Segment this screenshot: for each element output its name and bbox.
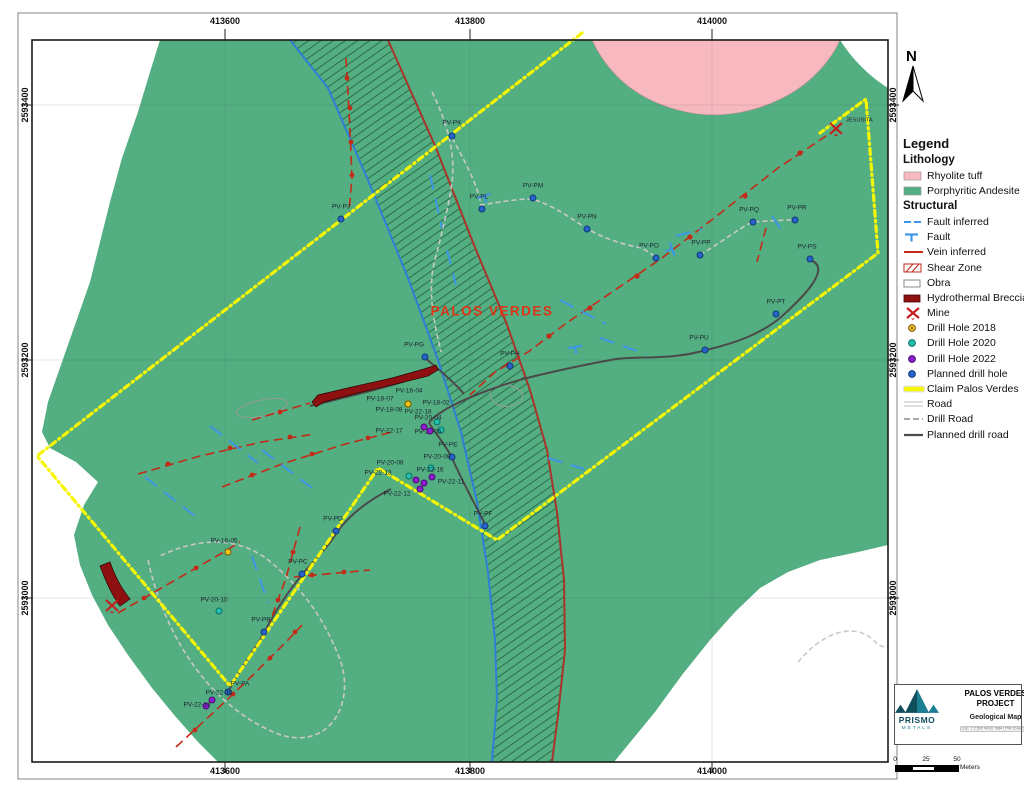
region-label: PALOS VERDES <box>431 304 554 319</box>
drillhole-PV-16-05 <box>225 549 232 556</box>
legend-label: Drill Hole 2020 <box>927 337 996 349</box>
legend-label: Fault <box>927 231 950 243</box>
legend-label: Drill Hole 2018 <box>927 322 996 334</box>
north-arrow-icon <box>903 66 923 101</box>
drillhole-PV-PR <box>792 217 799 224</box>
drill-road-icon <box>903 413 927 425</box>
dh-2018-icon <box>903 322 927 334</box>
drillhole-label-PV-PR: PV-PR <box>787 205 807 212</box>
drillhole-label-PV-PM: PV-PM <box>523 183 543 190</box>
legend-label: Mine <box>927 307 950 319</box>
drillhole-label-PV-PO: PV-PO <box>639 243 659 250</box>
legend-item-mine: Mine <box>903 306 1023 321</box>
fault-icon <box>903 231 927 243</box>
coord-left-2593400: 2593400 <box>20 87 30 122</box>
drillhole-label-PV-22-12: PV-22-12 <box>383 491 410 498</box>
drillhole-label-PV-PS: PV-PS <box>797 244 816 251</box>
project-title-line1: PALOS VERDES <box>964 689 1024 699</box>
vein-inferred-icon <box>903 246 927 258</box>
coord-left-2593000: 2593000 <box>20 580 30 615</box>
drillhole-label-PV-PQ: PV-PQ <box>739 207 759 214</box>
dh-planned-icon <box>903 368 927 380</box>
coord-top-413800: 413800 <box>455 16 485 26</box>
drillhole-PV-20-08 <box>406 473 413 480</box>
drillhole-PV-PS <box>807 256 814 263</box>
drillhole-label-PV-PA: PV-PA <box>231 681 250 688</box>
coord-top-414000: 414000 <box>697 16 727 26</box>
drillhole-label-PV-PE: PV-PE <box>438 442 457 449</box>
drillhole-PV-PO <box>653 255 660 262</box>
drillhole-PV-PM <box>530 195 537 202</box>
legend-item-shear-zone: Shear Zone <box>903 260 1023 275</box>
legend-label: Road <box>927 398 952 410</box>
legend-label: Vein inferred <box>927 246 986 258</box>
legend-label: Drill Road <box>927 413 973 425</box>
drillhole-label-PV-22-15: PV-22-15 <box>205 690 232 697</box>
drillhole-PV-22-11 <box>429 474 436 481</box>
legend-item-road: Road <box>903 397 1023 412</box>
drillhole-PV-PN <box>584 226 591 233</box>
drillhole-PV-22-17 <box>427 428 434 435</box>
legend-heading-lithology: Lithology <box>903 154 1023 166</box>
legend-label: Hydrothermal Breccia <box>927 292 1024 304</box>
drillhole-PV-PD <box>333 528 340 535</box>
drillhole-PV-PK <box>449 133 456 140</box>
drillhole-PV-PF <box>482 523 489 530</box>
legend-label: Rhyolite tuff <box>927 170 982 182</box>
drillhole-label-PV-PU: PV-PU <box>689 335 709 342</box>
drillhole-label-PV-PG: PV-PG <box>404 342 424 349</box>
swatch-andesite-icon <box>903 185 927 197</box>
scale-bar-graphic <box>895 765 959 772</box>
fault-inferred-icon <box>903 216 927 228</box>
scale-tick-25: 25 <box>922 756 929 763</box>
scale-tick-50: 50 <box>953 756 960 763</box>
drillhole-label-PV-PT: PV-PT <box>767 299 786 306</box>
drillhole-label-PV-22-14: PV-22-14 <box>183 702 210 709</box>
mine-icon <box>903 306 927 320</box>
legend-label: Drill Hole 2022 <box>927 353 996 365</box>
legend-item-planned-drill-road: Planned drill road <box>903 427 1023 442</box>
drillhole-label-PV-PB: PV-PB <box>251 617 270 624</box>
coord-right-2593400: 2593400 <box>888 87 898 122</box>
drillhole-label-PV-PH: PV-PH <box>500 351 520 358</box>
project-title-line2: PROJECT <box>977 699 1015 709</box>
drillhole-label-PV-22-18: PV-22-18 <box>404 409 431 416</box>
legend: Legend LithologyRhyolite tuffPorphyritic… <box>903 136 1023 442</box>
title-block-text: PALOS VERDES PROJECT Geological Map Esc.… <box>939 685 1024 744</box>
coord-bottom-414000: 414000 <box>697 766 727 776</box>
legend-item-obra: Obra <box>903 275 1023 290</box>
legend-title: Legend <box>903 136 1023 151</box>
title-block: PRISMO METALS PALOS VERDES PROJECT Geolo… <box>894 684 1022 745</box>
drillhole-PV-PB <box>261 629 268 636</box>
coord-top-413600: 413600 <box>210 16 240 26</box>
drillhole-PV-22-13 <box>413 477 420 484</box>
drillhole-label-PV-PJ: PV-PJ <box>332 204 350 211</box>
obra-icon <box>903 277 927 289</box>
drillhole-label-PV-22-13: PV-22-13 <box>364 470 391 477</box>
drillhole-label-PV-18-02: PV-18-02 <box>422 400 449 407</box>
drillhole-label-PV-22-11: PV-22-11 <box>438 479 465 486</box>
drillhole-label-PV-22-17: PV-22-17 <box>375 428 402 435</box>
legend-item-dh-2018: Drill Hole 2018 <box>903 321 1023 336</box>
drillhole-PV-22-12 <box>417 486 424 493</box>
mine-name-label: JESUSITA <box>846 117 873 123</box>
coord-right-2593200: 2593200 <box>888 342 898 377</box>
road-icon <box>903 398 927 410</box>
coord-bottom-413600: 413600 <box>210 766 240 776</box>
drillhole-label-PV-20-08: PV-20-08 <box>376 460 403 467</box>
legend-item-vein-inferred: Vein inferred <box>903 245 1023 260</box>
legend-label: Obra <box>927 277 950 289</box>
prismo-logo: PRISMO METALS <box>895 685 939 744</box>
drillhole-label-PV-PC: PV-PC <box>288 559 308 566</box>
metals-wordmark: METALS <box>902 725 932 730</box>
drillhole-PV-20-10 <box>216 608 223 615</box>
legend-item-claim: Claim Palos Verdes <box>903 381 1023 396</box>
legend-item-swatch-rhyolite: Rhyolite tuff <box>903 168 1023 183</box>
drillhole-label-PV-16-05: PV-16-05 <box>210 538 237 545</box>
drillhole-PV-PH <box>507 363 514 370</box>
drillhole-label-PV-20-04: PV-20-04 <box>414 415 441 422</box>
drillhole-label-PV-PL: PV-PL <box>470 194 488 201</box>
drillhole-label-PV-16-04: PV-16-04 <box>395 388 422 395</box>
legend-label: Planned drill road <box>927 429 1009 441</box>
claim-icon <box>903 383 927 395</box>
legend-item-fault: Fault <box>903 230 1023 245</box>
drillhole-label-PV-PN: PV-PN <box>577 214 597 221</box>
drillhole-label-PV-18-08: PV-18-08 <box>375 407 402 414</box>
legend-heading-structural: Structural <box>903 200 1023 212</box>
coord-left-2593200: 2593200 <box>20 342 30 377</box>
planned-drill-road-icon <box>903 429 927 441</box>
legend-item-breccia: Hydrothermal Breccia <box>903 290 1023 305</box>
drillhole-PV-PQ <box>750 219 757 226</box>
drillhole-PV-18-08 <box>405 401 412 408</box>
drillhole-label-PV-PP: PV-PP <box>691 240 710 247</box>
legend-label: Shear Zone <box>927 262 982 274</box>
legend-label: Planned drill hole <box>927 368 1008 380</box>
legend-item-swatch-andesite: Porphyritic Andesite <box>903 183 1023 198</box>
geological-map-sheet: PALOS VERDES JESUSITA N 4136004138004140… <box>0 0 1024 791</box>
prismo-logo-icon <box>895 688 939 714</box>
scale-bar: Meters 02550 <box>884 755 1014 777</box>
drillhole-PV-PJ <box>338 216 345 223</box>
drillhole-PV-PU <box>702 347 709 354</box>
breccia-icon <box>903 292 927 304</box>
legend-item-dh-2020: Drill Hole 2020 <box>903 336 1023 351</box>
drillhole-label-PV-PK: PV-PK <box>442 120 461 127</box>
drillhole-PV-PP <box>697 252 704 259</box>
drillhole-PV-PC <box>299 571 306 578</box>
legend-label: Fault inferred <box>927 216 989 228</box>
drillhole-label-PV-20-10: PV-20-10 <box>200 597 227 604</box>
legend-item-dh-planned: Planned drill hole <box>903 366 1023 381</box>
scale-bar-inset <box>913 767 934 770</box>
map-subtitle: Geological Map <box>970 714 1022 721</box>
shear-zone-icon <box>903 262 927 274</box>
legend-label: Porphyritic Andesite <box>927 185 1020 197</box>
swatch-rhyolite-icon <box>903 170 927 182</box>
legend-item-drill-road: Drill Road <box>903 412 1023 427</box>
prismo-wordmark: PRISMO <box>899 715 936 725</box>
dh-2022-icon <box>903 353 927 365</box>
dh-2020-icon <box>903 337 927 349</box>
legend-items: LithologyRhyolite tuffPorphyritic Andesi… <box>903 154 1023 442</box>
drillhole-PV-PT <box>773 311 780 318</box>
legend-item-fault-inferred: Fault inferred <box>903 214 1023 229</box>
drillhole-label-PV-20-09: PV-20-09 <box>423 454 450 461</box>
drillhole-label-PV-18-07: PV-18-07 <box>366 396 393 403</box>
drillhole-PV-PG <box>422 354 429 361</box>
map-info-strip: Esc. 1:2,500 WGS 1984 UTM Zone 13N <box>960 727 1024 732</box>
coord-bottom-413800: 413800 <box>455 766 485 776</box>
scale-unit: Meters <box>960 764 980 771</box>
legend-label: Claim Palos Verdes <box>927 383 1019 395</box>
drillhole-label-PV-PF: PV-PF <box>474 511 493 518</box>
drillhole-PV-PL <box>479 206 486 213</box>
drillhole-label-PV-22-16: PV-22-16 <box>416 467 443 474</box>
coord-right-2593000: 2593000 <box>888 580 898 615</box>
legend-item-dh-2022: Drill Hole 2022 <box>903 351 1023 366</box>
scale-tick-0: 0 <box>893 756 897 763</box>
north-label: N <box>906 48 917 65</box>
drillhole-label-PV-PD: PV-PD <box>323 516 343 523</box>
